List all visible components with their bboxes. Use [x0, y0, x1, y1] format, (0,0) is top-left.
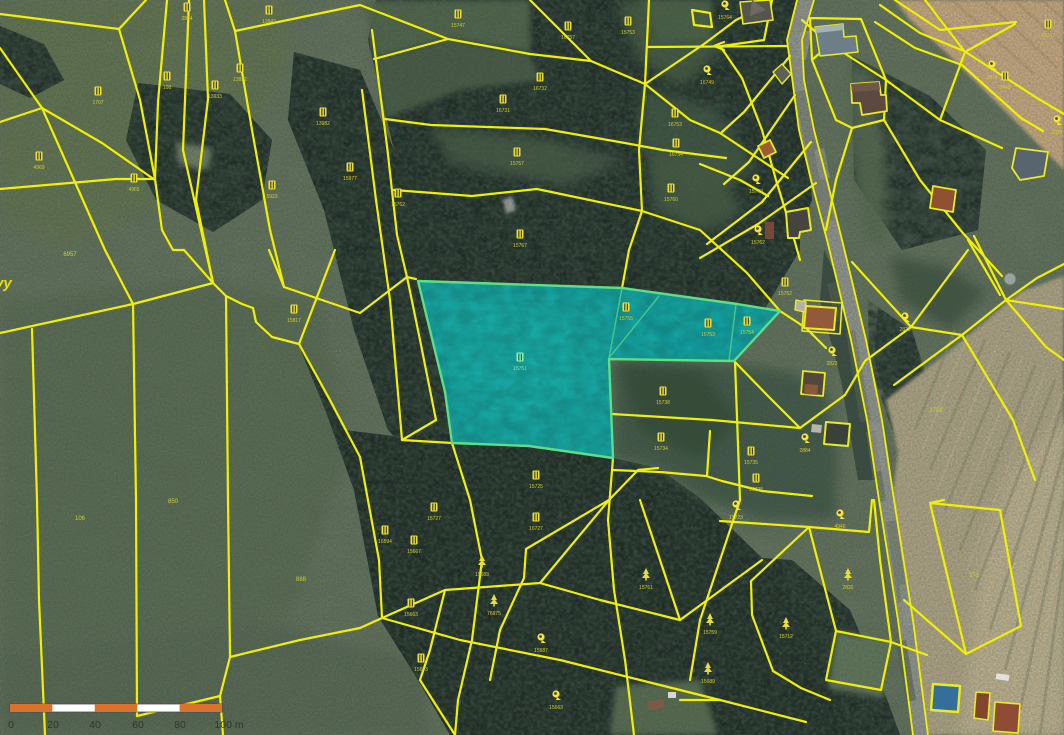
svg-text:2829: 2829	[899, 327, 910, 333]
svg-text:1707: 1707	[92, 100, 103, 106]
svg-text:2449: 2449	[999, 85, 1010, 91]
svg-text:4965: 4965	[128, 187, 139, 193]
svg-text:6957: 6957	[63, 252, 77, 258]
svg-text:16594: 16594	[378, 539, 392, 545]
svg-text:2874: 2874	[986, 75, 997, 81]
svg-text:2373: 2373	[1051, 130, 1062, 136]
svg-text:4946: 4946	[834, 524, 845, 530]
svg-text:271: 271	[969, 573, 980, 579]
svg-text:4969: 4969	[33, 165, 44, 171]
svg-text:15753: 15753	[701, 332, 715, 338]
svg-text:15667: 15667	[407, 549, 421, 555]
svg-text:16731: 16731	[496, 108, 510, 114]
svg-text:15734: 15734	[654, 446, 668, 452]
svg-text:40: 40	[89, 719, 101, 731]
svg-text:13982: 13982	[316, 121, 330, 127]
svg-text:15663: 15663	[404, 612, 418, 618]
svg-text:13943: 13943	[262, 19, 276, 25]
svg-text:106: 106	[75, 516, 86, 522]
svg-text:15767: 15767	[513, 243, 527, 249]
svg-text:16732: 16732	[533, 86, 547, 92]
svg-text:15753: 15753	[621, 30, 635, 36]
svg-text:15689: 15689	[701, 679, 715, 685]
svg-text:15762: 15762	[751, 240, 765, 246]
svg-text:15752: 15752	[778, 291, 792, 297]
svg-text:15759: 15759	[703, 630, 717, 636]
svg-text:15738: 15738	[656, 400, 670, 406]
svg-text:15747: 15747	[1041, 33, 1055, 39]
svg-text:15761: 15761	[639, 585, 653, 591]
svg-text:15683: 15683	[475, 572, 489, 578]
svg-text:2832: 2832	[842, 585, 853, 591]
svg-text:16753: 16753	[668, 122, 682, 128]
svg-text:15673: 15673	[414, 667, 428, 673]
svg-text:15723: 15723	[729, 515, 743, 521]
svg-text:15751: 15751	[513, 366, 527, 372]
svg-text:76975: 76975	[487, 611, 501, 617]
svg-text:15760: 15760	[664, 197, 678, 203]
svg-text:15754: 15754	[740, 330, 754, 336]
svg-text:16754: 16754	[669, 152, 683, 158]
svg-text:16727: 16727	[529, 526, 543, 532]
svg-text:15757: 15757	[510, 161, 524, 167]
svg-text:15727: 15727	[427, 516, 441, 522]
svg-text:13922: 13922	[233, 77, 247, 83]
svg-text:20: 20	[47, 719, 59, 731]
svg-text:16728: 16728	[749, 487, 763, 493]
svg-text:15977: 15977	[343, 176, 357, 182]
svg-text:100 m: 100 m	[214, 719, 243, 731]
svg-text:15687: 15687	[534, 648, 548, 654]
svg-text:15762: 15762	[391, 202, 405, 208]
svg-text:2758: 2758	[929, 408, 943, 414]
svg-text:850: 850	[168, 499, 179, 505]
svg-text:60: 60	[132, 719, 144, 731]
svg-text:5923: 5923	[266, 194, 277, 200]
svg-text:108: 108	[163, 85, 172, 91]
svg-text:16749: 16749	[700, 80, 714, 86]
svg-text:15725: 15725	[529, 484, 543, 490]
svg-text:2854: 2854	[181, 16, 192, 22]
svg-text:13933: 13933	[208, 94, 222, 100]
svg-text:vy: vy	[0, 275, 12, 292]
svg-text:888: 888	[296, 577, 307, 583]
svg-text:2823: 2823	[826, 361, 837, 367]
svg-text:15712: 15712	[779, 634, 793, 640]
svg-text:15663: 15663	[549, 705, 563, 711]
svg-text:15755: 15755	[619, 316, 633, 322]
svg-text:15764: 15764	[718, 15, 732, 21]
svg-text:2884: 2884	[799, 448, 810, 454]
svg-text:0: 0	[8, 719, 14, 731]
svg-text:15747: 15747	[451, 23, 465, 29]
svg-text:80: 80	[174, 719, 186, 731]
svg-text:15735: 15735	[744, 460, 758, 466]
svg-text:16757: 16757	[561, 35, 575, 41]
svg-text:15769: 15769	[749, 189, 763, 195]
svg-text:15817: 15817	[287, 318, 301, 324]
